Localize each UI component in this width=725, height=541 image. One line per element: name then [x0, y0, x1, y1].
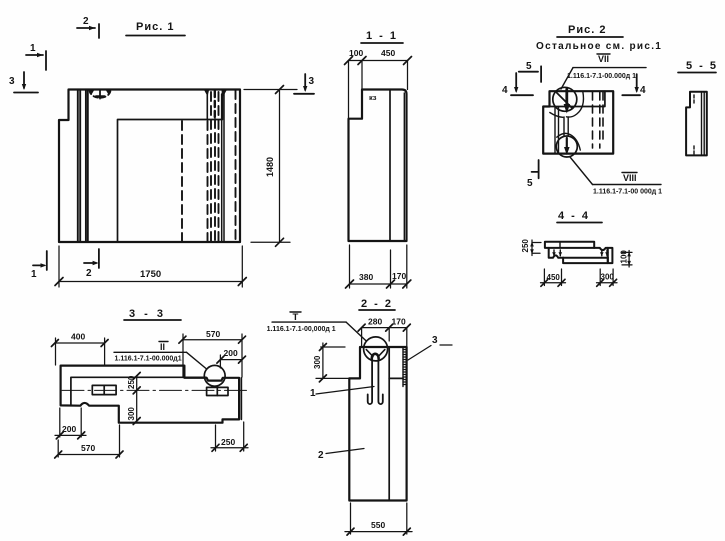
svg-text:300: 300 — [313, 355, 322, 369]
svg-text:100: 100 — [620, 250, 629, 264]
svg-text:100: 100 — [349, 48, 363, 58]
svg-text:280: 280 — [368, 317, 382, 327]
svg-text:2: 2 — [83, 16, 89, 27]
svg-text:1.116.1-7.1-00 000д 1: 1.116.1-7.1-00 000д 1 — [593, 189, 662, 196]
svg-text:T: T — [293, 312, 299, 323]
svg-text:4: 4 — [502, 85, 508, 96]
svg-text:250: 250 — [127, 375, 136, 389]
svg-text:5 - 5: 5 - 5 — [686, 60, 718, 72]
svg-text:VII: VII — [598, 54, 609, 64]
svg-text:4: 4 — [640, 85, 646, 96]
svg-text:1: 1 — [310, 388, 316, 399]
svg-text:1: 1 — [30, 43, 36, 54]
svg-text:450: 450 — [381, 48, 395, 58]
svg-text:300: 300 — [601, 273, 615, 282]
svg-text:3: 3 — [309, 76, 315, 87]
svg-text:Рис. 1: Рис. 1 — [136, 21, 174, 33]
svg-text:200: 200 — [224, 348, 238, 358]
svg-text:450: 450 — [547, 273, 561, 282]
svg-text:3: 3 — [9, 76, 15, 87]
svg-text:3 - 3: 3 - 3 — [129, 308, 166, 320]
svg-text:1.116.1-7.1-00.000д1: 1.116.1-7.1-00.000д1 — [115, 356, 182, 363]
svg-text:550: 550 — [371, 520, 385, 530]
svg-text:5: 5 — [527, 178, 533, 189]
svg-text:200: 200 — [62, 424, 76, 434]
svg-text:4 - 4: 4 - 4 — [558, 210, 590, 222]
svg-text:Рис. 2: Рис. 2 — [568, 24, 606, 36]
svg-text:250: 250 — [221, 437, 235, 447]
svg-text:250: 250 — [521, 239, 530, 253]
svg-text:II: II — [160, 342, 165, 352]
svg-text:3: 3 — [432, 335, 438, 346]
svg-text:1.116.1-7.1-00.000д 1: 1.116.1-7.1-00.000д 1 — [567, 73, 636, 80]
svg-text:1750: 1750 — [140, 269, 161, 280]
svg-text:170: 170 — [392, 317, 406, 327]
svg-text:570: 570 — [206, 329, 220, 339]
svg-text:2 - 2: 2 - 2 — [361, 298, 393, 310]
svg-text:1480: 1480 — [265, 157, 275, 177]
svg-text:1: 1 — [31, 269, 37, 280]
svg-text:570: 570 — [81, 443, 95, 453]
svg-text:2: 2 — [86, 268, 92, 279]
svg-text:Остальное см. рис.1: Остальное см. рис.1 — [536, 41, 662, 52]
svg-text:380: 380 — [359, 272, 373, 282]
svg-text:170: 170 — [392, 271, 406, 281]
svg-text:1.116.1-7.1-00,000д 1: 1.116.1-7.1-00,000д 1 — [267, 326, 336, 333]
svg-text:2: 2 — [318, 450, 324, 461]
svg-text:400: 400 — [71, 332, 85, 342]
svg-text:1 - 1: 1 - 1 — [366, 30, 398, 42]
svg-text:300: 300 — [127, 407, 136, 421]
svg-text:5: 5 — [526, 61, 532, 72]
svg-text:VIII: VIII — [623, 173, 637, 183]
svg-text:кз: кз — [369, 93, 377, 102]
